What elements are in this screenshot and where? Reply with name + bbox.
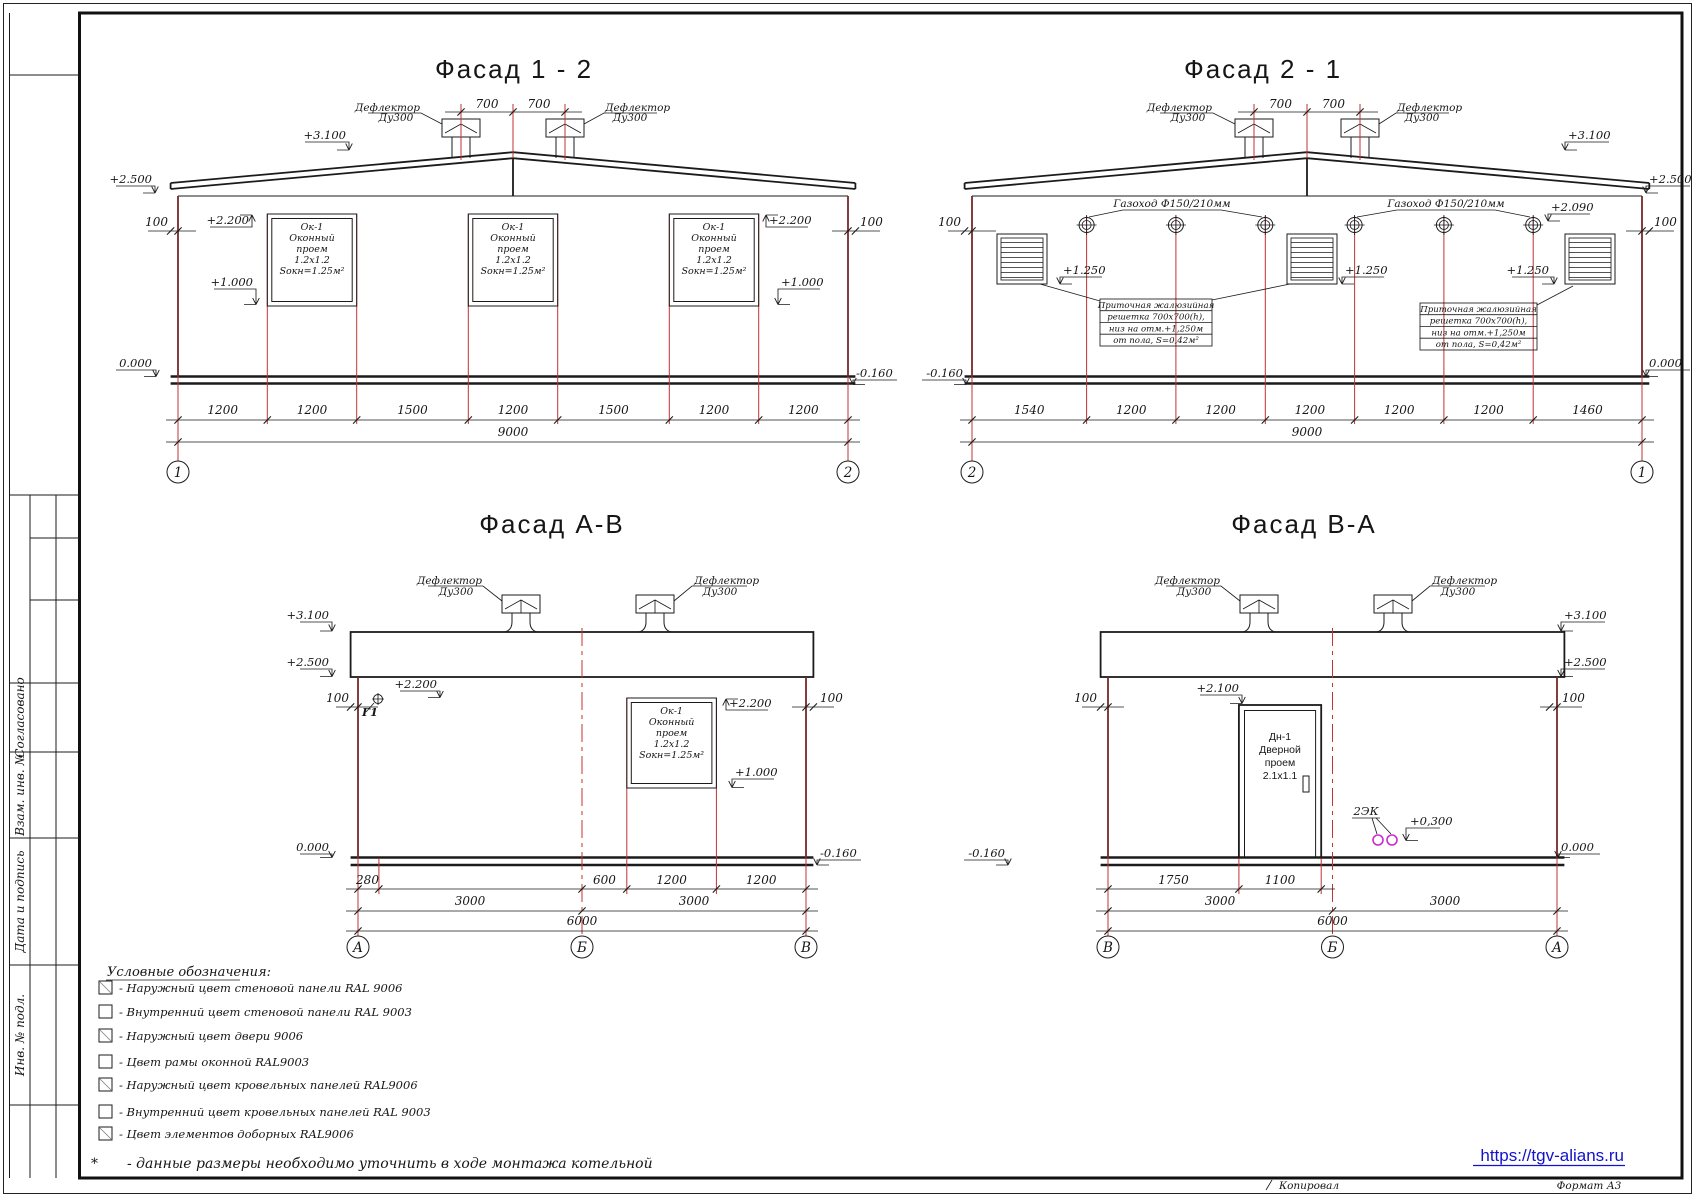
dim-700: 700 bbox=[1269, 97, 1292, 111]
stamp-inv: Инв. № подл. bbox=[13, 994, 27, 1077]
cable-entry-marker bbox=[1373, 835, 1397, 845]
svg-text:В: В bbox=[1102, 940, 1113, 956]
grid-axis-bubble: В Б А bbox=[1097, 936, 1568, 958]
footnote-star: * bbox=[91, 1156, 98, 1172]
elevation-1250: +1.250 bbox=[1506, 263, 1549, 277]
svg-text:1: 1 bbox=[1638, 465, 1647, 481]
dim-total: 6000 bbox=[567, 914, 598, 928]
elevation-1000: +1.000 bbox=[781, 275, 824, 289]
site-link[interactable]: https://tgv-alians.ru bbox=[1480, 1146, 1624, 1165]
flue-outlet bbox=[1077, 215, 1097, 235]
dim-label: 3000 bbox=[1205, 894, 1236, 908]
stamp-agreed: Согласовано bbox=[13, 677, 27, 757]
dim-total: 9000 bbox=[498, 425, 529, 439]
cable-entry-label: 2ЭК bbox=[1352, 804, 1379, 818]
dim-100: 100 bbox=[1562, 691, 1585, 705]
window-opening: Ок-1 Оконный проем 1.2х1.2 Sокн=1.25м² bbox=[267, 214, 356, 306]
legend-item: - Наружный цвет стеновой панели RAL 9006 bbox=[119, 981, 403, 995]
svg-text:Приточная жалюзийная: Приточная жалюзийная bbox=[1419, 305, 1537, 315]
elevation-1000: +1.000 bbox=[735, 765, 778, 779]
window-label: Оконный bbox=[289, 233, 335, 244]
chimney-pipes bbox=[1243, 613, 1409, 632]
legend-item: - Наружный цвет двери 9006 bbox=[119, 1029, 303, 1043]
deflector-size: Ду300 bbox=[1176, 586, 1212, 598]
elevation-1000: +1.000 bbox=[210, 275, 253, 289]
window-mark: Ок-1 bbox=[301, 222, 324, 233]
deflector-size: Ду300 bbox=[702, 586, 738, 598]
deflector-size: Ду300 bbox=[1170, 112, 1206, 124]
window-area: Sокн=1.25м² bbox=[639, 750, 704, 761]
dim-label: 1200 bbox=[788, 403, 819, 417]
window-opening: Ок-1 Оконный проем 1.2х1.2 Sокн=1.25м² bbox=[468, 214, 557, 306]
deflector bbox=[1374, 595, 1412, 613]
svg-text:А: А bbox=[1551, 940, 1562, 956]
flue-outlet bbox=[1345, 215, 1365, 235]
dim-total: 6000 bbox=[1317, 914, 1348, 928]
window-size: 1.2х1.2 bbox=[654, 739, 690, 750]
elevation-3100: +3.100 bbox=[1568, 128, 1611, 142]
flue-outlet bbox=[1434, 215, 1454, 235]
svg-text:от пола, S=0,42м²: от пола, S=0,42м² bbox=[1113, 336, 1199, 346]
grid-axis-bubble: 2 1 bbox=[961, 461, 1653, 483]
annotation-lines bbox=[922, 112, 1690, 442]
dim-label: 600 bbox=[593, 873, 616, 887]
elevation-3100: +3.100 bbox=[286, 608, 329, 622]
dim-label: 1750 bbox=[1158, 873, 1189, 887]
window-label: Оконный bbox=[490, 233, 536, 244]
dim-label: 3000 bbox=[679, 894, 710, 908]
legend-swatch bbox=[99, 1005, 112, 1018]
air-intake-grille bbox=[1287, 234, 1337, 284]
elevation-2200: +2.200 bbox=[206, 213, 249, 227]
dim-label: 1460 bbox=[1572, 403, 1603, 417]
dim-label: 1500 bbox=[598, 403, 629, 417]
legend-item: - Внутренний цвет кровельных панелей RAL… bbox=[119, 1105, 431, 1119]
stamp-vzam: Взам. инв. № bbox=[13, 754, 27, 837]
dim-label: 1200 bbox=[207, 403, 238, 417]
window-area: Sокн=1.25м² bbox=[280, 266, 345, 277]
elevation-m0160: -0.160 bbox=[856, 366, 893, 380]
elevation-1250: +1.250 bbox=[1063, 263, 1106, 277]
elevation-m0160: -0.160 bbox=[968, 846, 1005, 860]
window-area: Sокн=1.25м² bbox=[481, 266, 546, 277]
elevation-0300: +0,300 bbox=[1410, 814, 1453, 828]
svg-text:2: 2 bbox=[843, 465, 853, 481]
dim-100: 100 bbox=[1074, 691, 1097, 705]
window-label: проем bbox=[497, 244, 529, 255]
dim-label: 1200 bbox=[656, 873, 687, 887]
dim-100: 100 bbox=[860, 215, 883, 229]
grid-axis-bubble: 1 2 bbox=[167, 461, 859, 483]
legend-item: - Наружный цвет кровельных панелей RAL90… bbox=[119, 1078, 418, 1092]
svg-text:низ на отм.+1,250м: низ на отм.+1,250м bbox=[1109, 325, 1203, 335]
dim-label: 1200 bbox=[1384, 403, 1415, 417]
dim-label: 1100 bbox=[1265, 873, 1296, 887]
elevation-2500: +2.500 bbox=[286, 655, 329, 669]
door-label: проем bbox=[1265, 757, 1295, 769]
dim-100: 100 bbox=[326, 691, 349, 705]
svg-text:от пола, S=0,42м²: от пола, S=0,42м² bbox=[1436, 340, 1522, 350]
window-size: 1.2х1.2 bbox=[294, 255, 330, 266]
dim-label: 1200 bbox=[498, 403, 529, 417]
window-mark: Ок-1 bbox=[703, 222, 726, 233]
svg-text:Приточная жалюзийная: Приточная жалюзийная bbox=[1097, 301, 1215, 311]
drawing-sheet: Согласовано Взам. инв. № Дата и подпись … bbox=[0, 0, 1697, 1200]
air-intake-grille bbox=[1565, 234, 1615, 284]
annotation-lines bbox=[300, 586, 861, 931]
gas-entry-label: Г1 bbox=[361, 705, 378, 719]
facade-a-b: Фасад А-В Ок-1 Оконный проем 1.2х1.2 Sок… bbox=[286, 509, 861, 958]
air-intake-grille bbox=[997, 234, 1047, 284]
deflector-size: Ду300 bbox=[612, 112, 648, 124]
deflector-size: Ду300 bbox=[438, 586, 474, 598]
svg-text:1: 1 bbox=[174, 465, 183, 481]
elevation-0000: 0.000 bbox=[1561, 840, 1594, 854]
deflector bbox=[1240, 595, 1278, 613]
window-size: 1.2х1.2 bbox=[495, 255, 531, 266]
chimney-pipes bbox=[505, 613, 671, 632]
dim-label: 280 bbox=[355, 873, 379, 887]
elevation-3100: +3.100 bbox=[303, 128, 346, 142]
facade-1-2: Фасад 1 - 2 Ок-1 Оконный проем 1.2х1.2 S… bbox=[109, 54, 897, 483]
elevation-2500: +2.500 bbox=[109, 172, 152, 186]
svg-text:низ на отм.+1,250м: низ на отм.+1,250м bbox=[1431, 329, 1525, 339]
facade-2-1: Фасад 2 - 1 Приточная жалюзийная решетка… bbox=[922, 54, 1692, 483]
dim-label: 1200 bbox=[1116, 403, 1147, 417]
dim-label: 3000 bbox=[1430, 894, 1461, 908]
deflector bbox=[502, 595, 540, 613]
window-label: Оконный bbox=[649, 717, 695, 728]
legend-title: Условные обозначения: bbox=[107, 965, 271, 980]
facade-b-a-title: Фасад В-А bbox=[1231, 509, 1376, 539]
elevation-0000: 0.000 bbox=[1649, 356, 1682, 370]
dim-total: 9000 bbox=[1292, 425, 1323, 439]
window-size: 1.2х1.2 bbox=[696, 255, 732, 266]
dim-label: 1200 bbox=[297, 403, 328, 417]
svg-text:2: 2 bbox=[967, 465, 977, 481]
stamp-date-sign: Дата и подпись bbox=[13, 850, 27, 953]
facade-a-b-title: Фасад А-В bbox=[479, 509, 624, 539]
legend: Условные обозначения: - Наружный цвет ст… bbox=[91, 965, 653, 1172]
window-area: Sокн=1.25м² bbox=[682, 266, 747, 277]
deflector bbox=[636, 595, 674, 613]
footer: https://tgv-alians.ru Копировал Формат А… bbox=[1266, 1146, 1625, 1192]
elevation-3100: +3.100 bbox=[1564, 608, 1607, 622]
deflector-size: Ду300 bbox=[1440, 586, 1476, 598]
dim-700: 700 bbox=[476, 97, 499, 111]
flue-outlet bbox=[1255, 215, 1275, 235]
facade-1-2-title: Фасад 1 - 2 bbox=[435, 54, 593, 84]
legend-item: - Цвет элементов доборных RAL9006 bbox=[119, 1127, 354, 1141]
svg-text:А: А bbox=[352, 940, 363, 956]
window-mark: Ок-1 bbox=[660, 706, 683, 717]
grille-note-box: Приточная жалюзийная решетка 700х700(h),… bbox=[1419, 303, 1537, 350]
window-opening: Ок-1 Оконный проем 1.2х1.2 Sокн=1.25м² bbox=[669, 214, 758, 306]
door-size: 2.1х1.1 bbox=[1263, 770, 1298, 782]
svg-text:В: В bbox=[800, 940, 811, 956]
copied-label: Копировал bbox=[1278, 1180, 1339, 1192]
legend-swatch bbox=[99, 1105, 112, 1118]
flue-label: Газоход Ф150/210мм bbox=[1386, 198, 1504, 210]
dim-100: 100 bbox=[820, 691, 843, 705]
grille-note-box: Приточная жалюзийная решетка 700х700(h),… bbox=[1097, 299, 1215, 346]
dim-100: 100 bbox=[145, 215, 168, 229]
dim-label: 1500 bbox=[397, 403, 428, 417]
grid-axis-bubble: А Б В bbox=[347, 936, 817, 958]
svg-text:решетка 700х700(h),: решетка 700х700(h), bbox=[1430, 316, 1528, 327]
deflector-size: Ду300 bbox=[378, 112, 414, 124]
dim-100: 100 bbox=[938, 215, 961, 229]
svg-text:Б: Б bbox=[1327, 940, 1338, 956]
elevation-2500: +2.500 bbox=[1649, 172, 1692, 186]
window-mark: Ок-1 bbox=[502, 222, 525, 233]
window-label: Оконный bbox=[691, 233, 737, 244]
flue-outlet bbox=[1523, 215, 1543, 235]
flue-label: Газоход Ф150/210мм bbox=[1112, 198, 1230, 210]
door-mark: Дн-1 bbox=[1269, 731, 1291, 743]
elevation-m0160: -0.160 bbox=[926, 366, 963, 380]
dim-100: 100 bbox=[1654, 215, 1677, 229]
legend-item: - Цвет рамы оконной RAL9003 bbox=[119, 1055, 309, 1069]
deflector-size: Ду300 bbox=[1404, 112, 1440, 124]
window-opening: Ок-1 Оконный проем 1.2х1.2 Sокн=1.25м² bbox=[627, 698, 717, 788]
elevation-2200: +2.200 bbox=[769, 213, 812, 227]
elevation-0000: 0.000 bbox=[296, 840, 329, 854]
elevation-2200: +2.200 bbox=[729, 696, 772, 710]
window-label: проем bbox=[296, 244, 328, 255]
elevation-2500: +2.500 bbox=[1564, 655, 1607, 669]
legend-item: - Внутренний цвет стеновой панели RAL 90… bbox=[119, 1005, 412, 1019]
format-label: Формат А3 bbox=[1557, 1180, 1622, 1192]
svg-text:решетка 700х700(h),: решетка 700х700(h), bbox=[1107, 312, 1205, 323]
dim-label: 1540 bbox=[1014, 403, 1045, 417]
footnote-text: - данные размеры необходимо уточнить в х… bbox=[127, 1156, 653, 1172]
dim-700: 700 bbox=[1322, 97, 1345, 111]
elevation-0000: 0.000 bbox=[119, 356, 152, 370]
elevation-2200: +2.200 bbox=[394, 677, 437, 691]
elevation-1250: +1.250 bbox=[1345, 263, 1388, 277]
door-handle bbox=[1303, 776, 1309, 792]
facade-2-1-title: Фасад 2 - 1 bbox=[1184, 54, 1342, 84]
door-label: Дверной bbox=[1259, 744, 1301, 756]
dim-label: 1200 bbox=[1295, 403, 1326, 417]
dim-label: 1200 bbox=[746, 873, 777, 887]
legend-swatch bbox=[99, 1055, 112, 1068]
dim-label: 1200 bbox=[699, 403, 730, 417]
dim-700: 700 bbox=[528, 97, 551, 111]
stamp-labels: Согласовано Взам. инв. № Дата и подпись … bbox=[13, 677, 27, 1077]
window-label: проем bbox=[698, 244, 730, 255]
door-opening: Дн-1 Дверной проем 2.1х1.1 bbox=[1239, 705, 1321, 858]
plinth bbox=[965, 377, 1650, 384]
dim-label: 1200 bbox=[1205, 403, 1236, 417]
elevation-2090: +2.090 bbox=[1551, 200, 1594, 214]
window-label: проем bbox=[656, 728, 688, 739]
elevation-2100: +2.100 bbox=[1196, 681, 1239, 695]
flue-outlet bbox=[1166, 215, 1186, 235]
facade-b-a: Фасад В-А Дн-1 Дверной проем 2.1х1.1 bbox=[964, 509, 1607, 958]
plinth bbox=[171, 377, 856, 384]
dim-label: 3000 bbox=[455, 894, 486, 908]
elevation-m0160: -0.160 bbox=[820, 846, 857, 860]
dim-label: 1200 bbox=[1473, 403, 1504, 417]
svg-text:Б: Б bbox=[576, 940, 587, 956]
